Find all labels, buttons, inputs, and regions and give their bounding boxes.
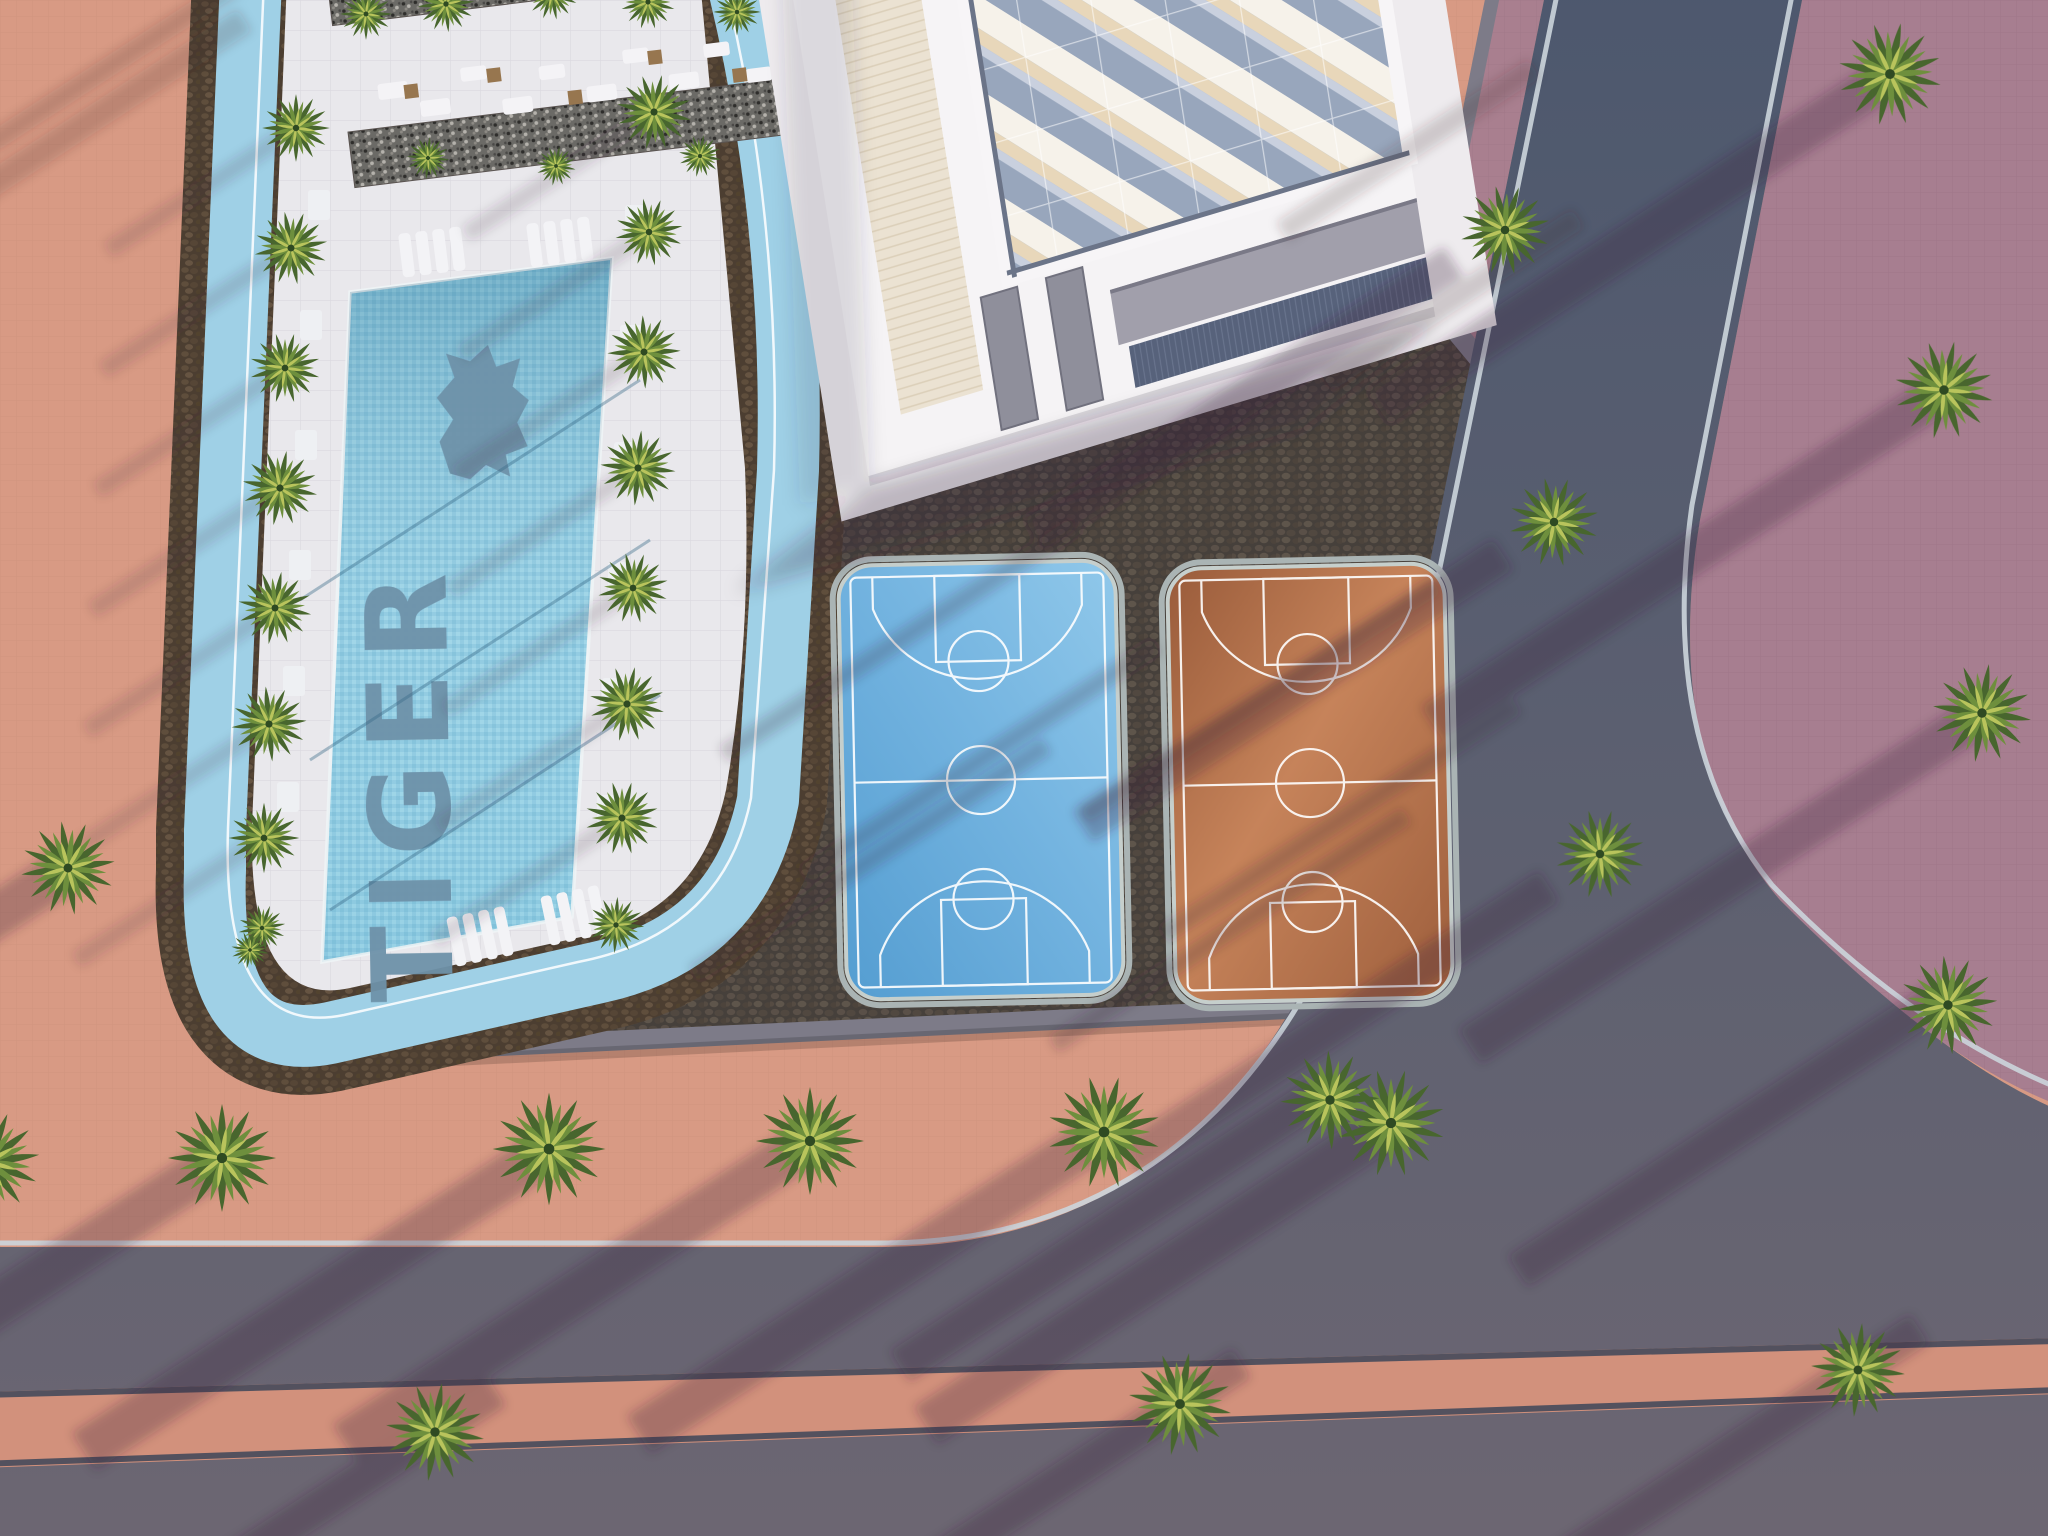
aerial-render-stage: TIGER [0, 0, 2048, 1536]
